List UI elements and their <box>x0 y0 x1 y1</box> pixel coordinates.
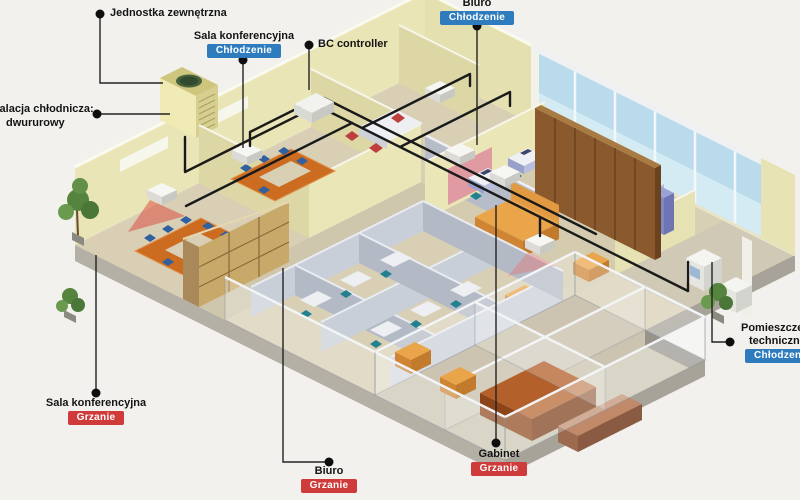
callout-technical-room: Pomieszczenie techniczne Chłodzenie <box>741 322 800 363</box>
callout-cabinet-heating: Gabinet Grzanie <box>449 448 549 476</box>
callout-conference-heating-text: Sala konferencyjna <box>44 397 148 410</box>
potted-plant <box>56 288 85 323</box>
callout-office-heating-text: Biuro <box>279 465 379 478</box>
callout-dot <box>96 10 105 19</box>
callout-dot <box>492 439 501 448</box>
vrf-office-diagram-page: { "colors": { "cooling_badge": "#2e7cbe"… <box>0 0 800 500</box>
callout-technical-room-line2: techniczne <box>741 335 800 348</box>
callout-cabinet-heating-text: Gabinet <box>449 448 549 461</box>
callout-piping-line2: dwururowy <box>6 117 65 130</box>
heating-mode-badge: Grzanie <box>68 411 125 425</box>
callout-bc-controller: BC controller <box>318 38 388 51</box>
callout-office-cooling: Biuro Chłodzenie <box>427 0 527 25</box>
callout-outdoor-unit: Jednostka zewnętrzna <box>110 7 227 20</box>
callout-conference-cooling-text: Sala konferencyjna <box>178 30 310 43</box>
callout-office-cooling-text: Biuro <box>427 0 527 10</box>
callout-dot <box>93 110 102 119</box>
callout-office-heating: Biuro Grzanie <box>279 465 379 493</box>
callout-dot <box>726 338 735 347</box>
heating-mode-badge: Grzanie <box>471 462 528 476</box>
cooling-mode-badge: Chłodzenie <box>745 349 800 363</box>
cooling-mode-badge: Chłodzenie <box>207 44 281 58</box>
cooling-mode-badge: Chłodzenie <box>440 11 514 25</box>
callout-piping-line1: Instalacja chłodnicza: <box>0 103 94 116</box>
heating-mode-badge: Grzanie <box>301 479 358 493</box>
callout-conference-cooling: Sala konferencyjna Chłodzenie <box>178 30 310 58</box>
callout-technical-room-line1: Pomieszczenie <box>741 322 800 335</box>
callout-conference-heating: Sala konferencyjna Grzanie <box>44 397 148 425</box>
